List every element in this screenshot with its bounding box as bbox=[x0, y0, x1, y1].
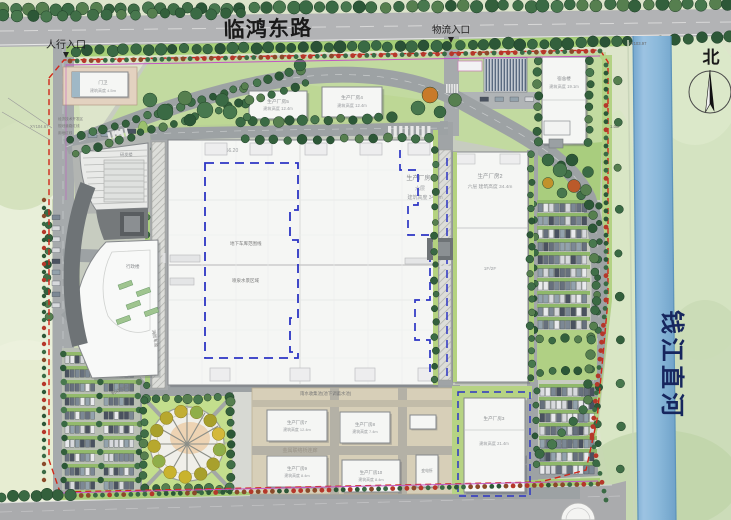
svg-text:生产厂房3: 生产厂房3 bbox=[484, 415, 505, 422]
svg-text:六层: 六层 bbox=[415, 185, 425, 192]
svg-text:地下车库范围线: 地下车库范围线 bbox=[230, 240, 262, 247]
svg-text:建筑高度 7.4m: 建筑高度 7.4m bbox=[352, 429, 377, 434]
svg-text:变电所: 变电所 bbox=[421, 468, 433, 473]
svg-text:建筑高度 8.4m: 建筑高度 8.4m bbox=[284, 473, 309, 478]
svg-text:规划道路红线: 规划道路红线 bbox=[58, 123, 80, 128]
svg-text:生产厂房4: 生产厂房4 bbox=[341, 94, 363, 101]
svg-text:XY104.67: XY104.67 bbox=[30, 124, 49, 129]
svg-text:宿舍楼: 宿舍楼 bbox=[557, 75, 571, 82]
svg-text:雨水收集池(池下调蓄水池): 雨水收集池(池下调蓄水池) bbox=[300, 390, 352, 397]
svg-text:门卫: 门卫 bbox=[98, 79, 108, 86]
svg-text:生产厂房5: 生产厂房5 bbox=[267, 98, 289, 105]
svg-text:物流入口: 物流入口 bbox=[432, 24, 470, 36]
svg-text:喷泉水景区域: 喷泉水景区域 bbox=[232, 277, 259, 284]
svg-text:生产厂房7: 生产厂房7 bbox=[287, 419, 308, 426]
svg-text:六层 建筑高度 34.4m: 六层 建筑高度 34.4m bbox=[468, 183, 513, 190]
svg-text:建筑高度 19.1m: 建筑高度 19.1m bbox=[549, 83, 579, 90]
svg-text:建筑高度 12.4m: 建筑高度 12.4m bbox=[283, 427, 310, 432]
svg-text:行政楼: 行政楼 bbox=[126, 263, 140, 270]
svg-text:建筑高度 4.5m: 建筑高度 4.5m bbox=[90, 87, 117, 93]
svg-text:生产厂房1: 生产厂房1 bbox=[406, 174, 434, 182]
svg-text:建筑高度 8.4m: 建筑高度 8.4m bbox=[358, 477, 383, 482]
svg-text:人行入口: 人行入口 bbox=[46, 38, 86, 51]
svg-text:建筑高度 12.4m: 建筑高度 12.4m bbox=[337, 102, 367, 109]
svg-text:临鸿东路: 临鸿东路 bbox=[223, 16, 312, 42]
svg-text:56.20: 56.20 bbox=[226, 148, 239, 154]
svg-text:生产厂房2: 生产厂房2 bbox=[477, 172, 502, 180]
svg-text:用地红线: 用地红线 bbox=[58, 130, 73, 135]
svg-text:金属联络桥连廊: 金属联络桥连廊 bbox=[282, 447, 317, 454]
svg-text:研发楼: 研发楼 bbox=[120, 151, 133, 158]
svg-text:生产厂房10: 生产厂房10 bbox=[360, 469, 383, 476]
svg-text:XY103.97: XY103.97 bbox=[628, 41, 647, 46]
svg-text:钱江直河: 钱江直河 bbox=[658, 310, 685, 420]
svg-text:北: 北 bbox=[703, 48, 720, 67]
svg-text:生产厂房9: 生产厂房9 bbox=[287, 465, 308, 472]
svg-text:经济技术开发区: 经济技术开发区 bbox=[58, 116, 84, 121]
svg-text:1F/2F: 1F/2F bbox=[484, 266, 497, 272]
svg-text:生产厂房8: 生产厂房8 bbox=[355, 421, 376, 428]
svg-text:建筑高度 21.4m: 建筑高度 21.4m bbox=[479, 440, 509, 447]
svg-text:建筑高度 12.4m: 建筑高度 12.4m bbox=[263, 105, 293, 112]
